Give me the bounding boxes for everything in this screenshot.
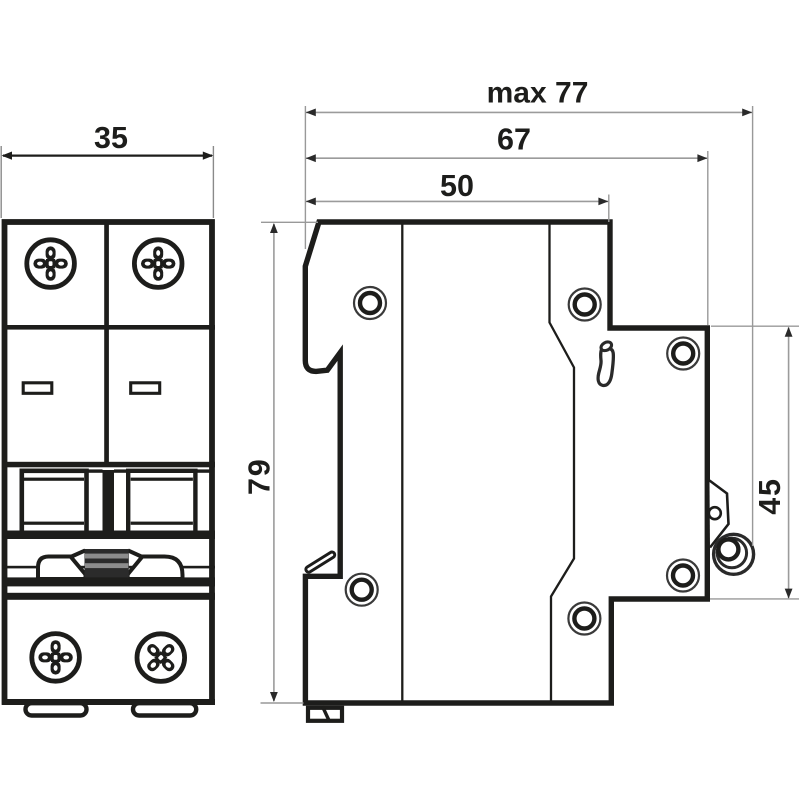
svg-text:max 77: max 77 <box>487 76 589 109</box>
svg-text:50: 50 <box>440 169 474 203</box>
svg-text:79: 79 <box>243 457 277 495</box>
svg-text:45: 45 <box>753 477 787 515</box>
svg-text:35: 35 <box>94 121 128 155</box>
svg-text:67: 67 <box>497 123 531 157</box>
